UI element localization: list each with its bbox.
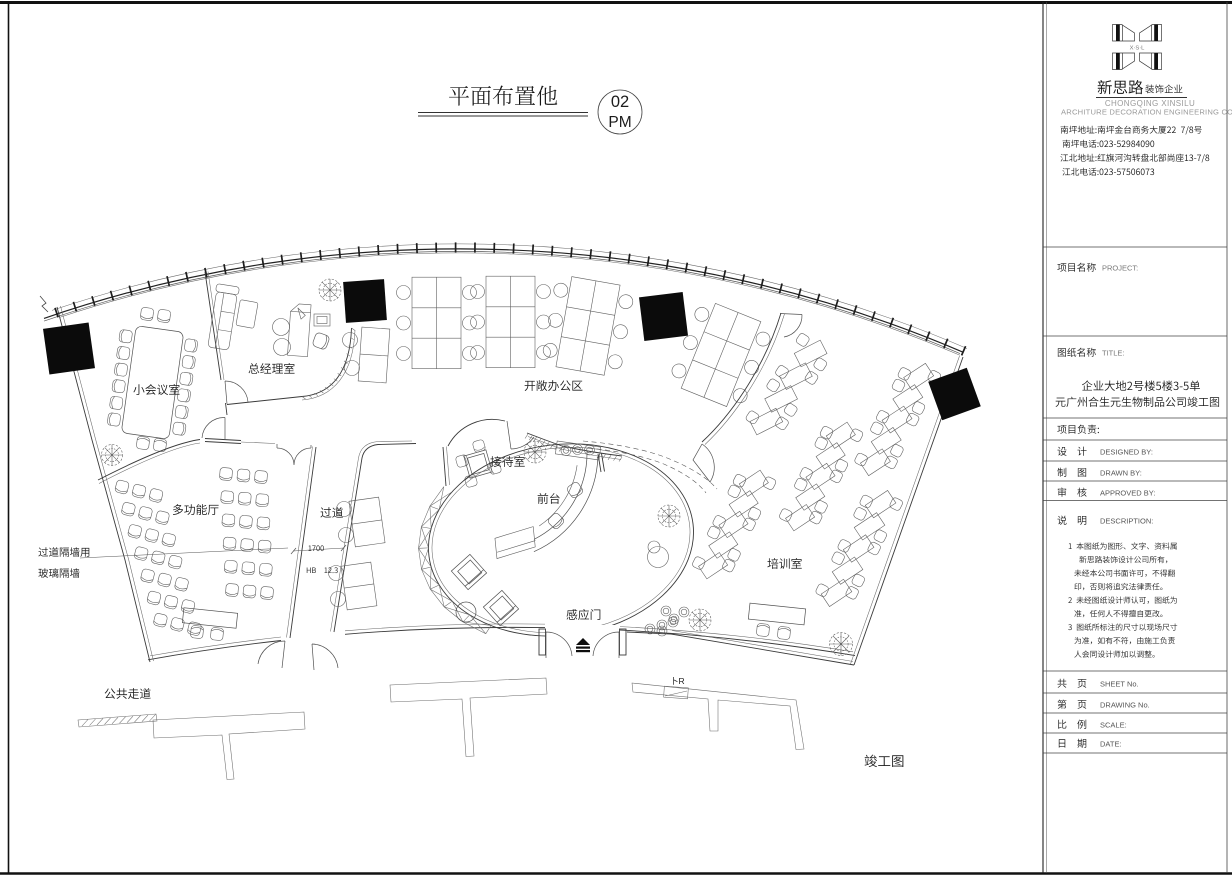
svg-text:TITLE:: TITLE:	[1102, 349, 1125, 358]
svg-text:DATE:: DATE:	[1100, 740, 1122, 749]
svg-text:SCALE:: SCALE:	[1100, 721, 1127, 730]
svg-text:SHEET No.: SHEET No.	[1100, 680, 1139, 689]
svg-text:DESIGNED BY:: DESIGNED BY:	[1100, 448, 1153, 457]
svg-text:PROJECT:: PROJECT:	[1102, 264, 1138, 273]
svg-text:ARCHITURE DECORATION ENGINEERI: ARCHITURE DECORATION ENGINEERING CO.,L	[1061, 108, 1232, 117]
svg-text:02: 02	[611, 93, 629, 111]
svg-text:卜R: 卜R	[670, 676, 685, 686]
svg-text:DESCRIPTION:: DESCRIPTION:	[1100, 517, 1153, 526]
svg-text:DRAWING No.: DRAWING No.	[1100, 701, 1150, 710]
svg-text:APPROVED BY:: APPROVED BY:	[1100, 489, 1155, 498]
svg-text:PM: PM	[608, 114, 631, 131]
svg-text:X·S·L: X·S·L	[1130, 46, 1146, 52]
svg-text:DRAWN BY:: DRAWN BY:	[1100, 469, 1142, 478]
